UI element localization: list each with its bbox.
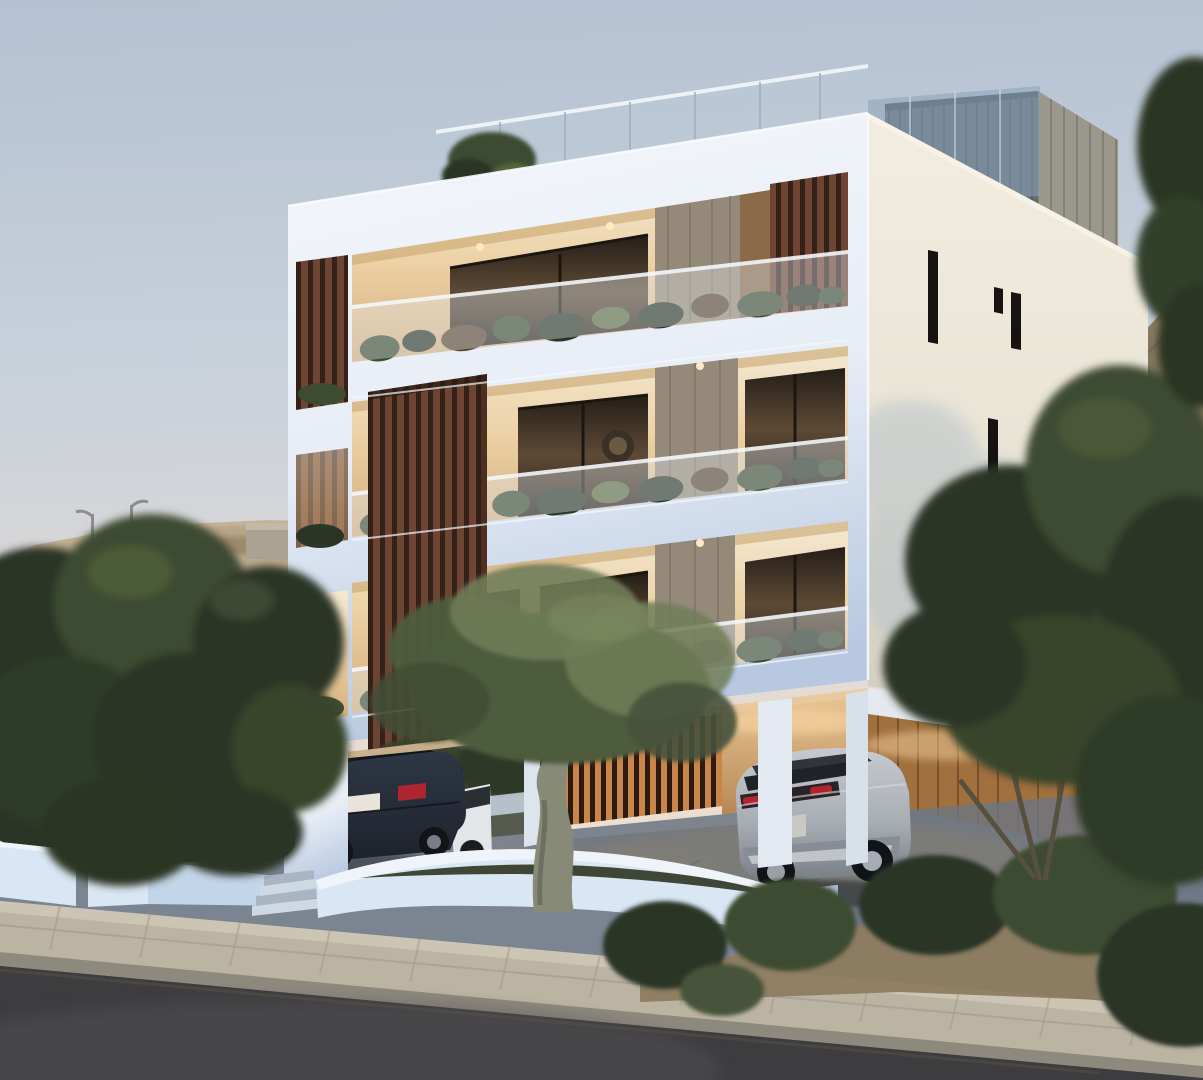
scene-svg: sandy excavated hillside with low concre… bbox=[0, 0, 1203, 1080]
rendering-canvas: sandy excavated hillside with low concre… bbox=[0, 0, 1203, 1080]
